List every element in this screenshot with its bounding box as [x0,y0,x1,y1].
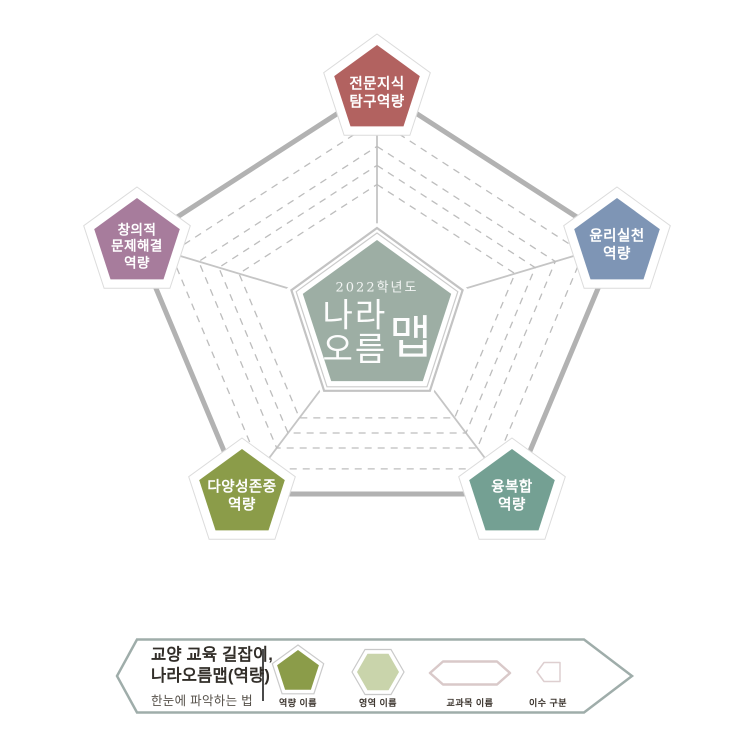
node-convergence [459,438,566,539]
legend-banner-group [117,640,632,713]
node-diversity-respect [189,438,296,539]
competency-map-canvas: 2022학년도 나라 오름 맵 전문지식 탐구역량 윤리실천 역량 융복합 역량… [0,0,753,753]
node-creative-problem-solving [84,187,191,288]
competency-map-svg [0,0,753,753]
node-professional-knowledge [324,34,431,135]
center-pentagon-group [287,223,468,395]
node-ethics-practice [564,187,671,288]
legend-course-pill-icon [430,662,510,685]
